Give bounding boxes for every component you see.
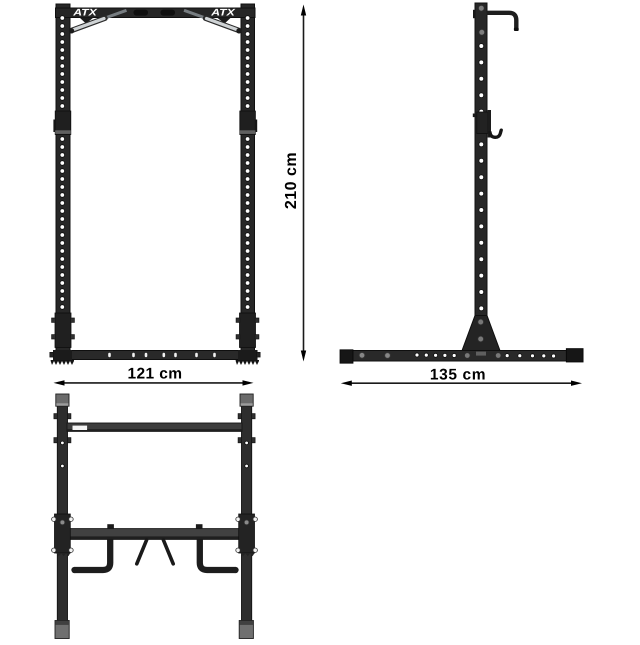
svg-text:121 cm: 121 cm (128, 365, 183, 382)
svg-text:ATX: ATX (210, 8, 236, 19)
svg-text:ATX: ATX (72, 8, 98, 19)
svg-text:210 cm: 210 cm (283, 152, 300, 209)
svg-text:135 cm: 135 cm (430, 367, 486, 384)
